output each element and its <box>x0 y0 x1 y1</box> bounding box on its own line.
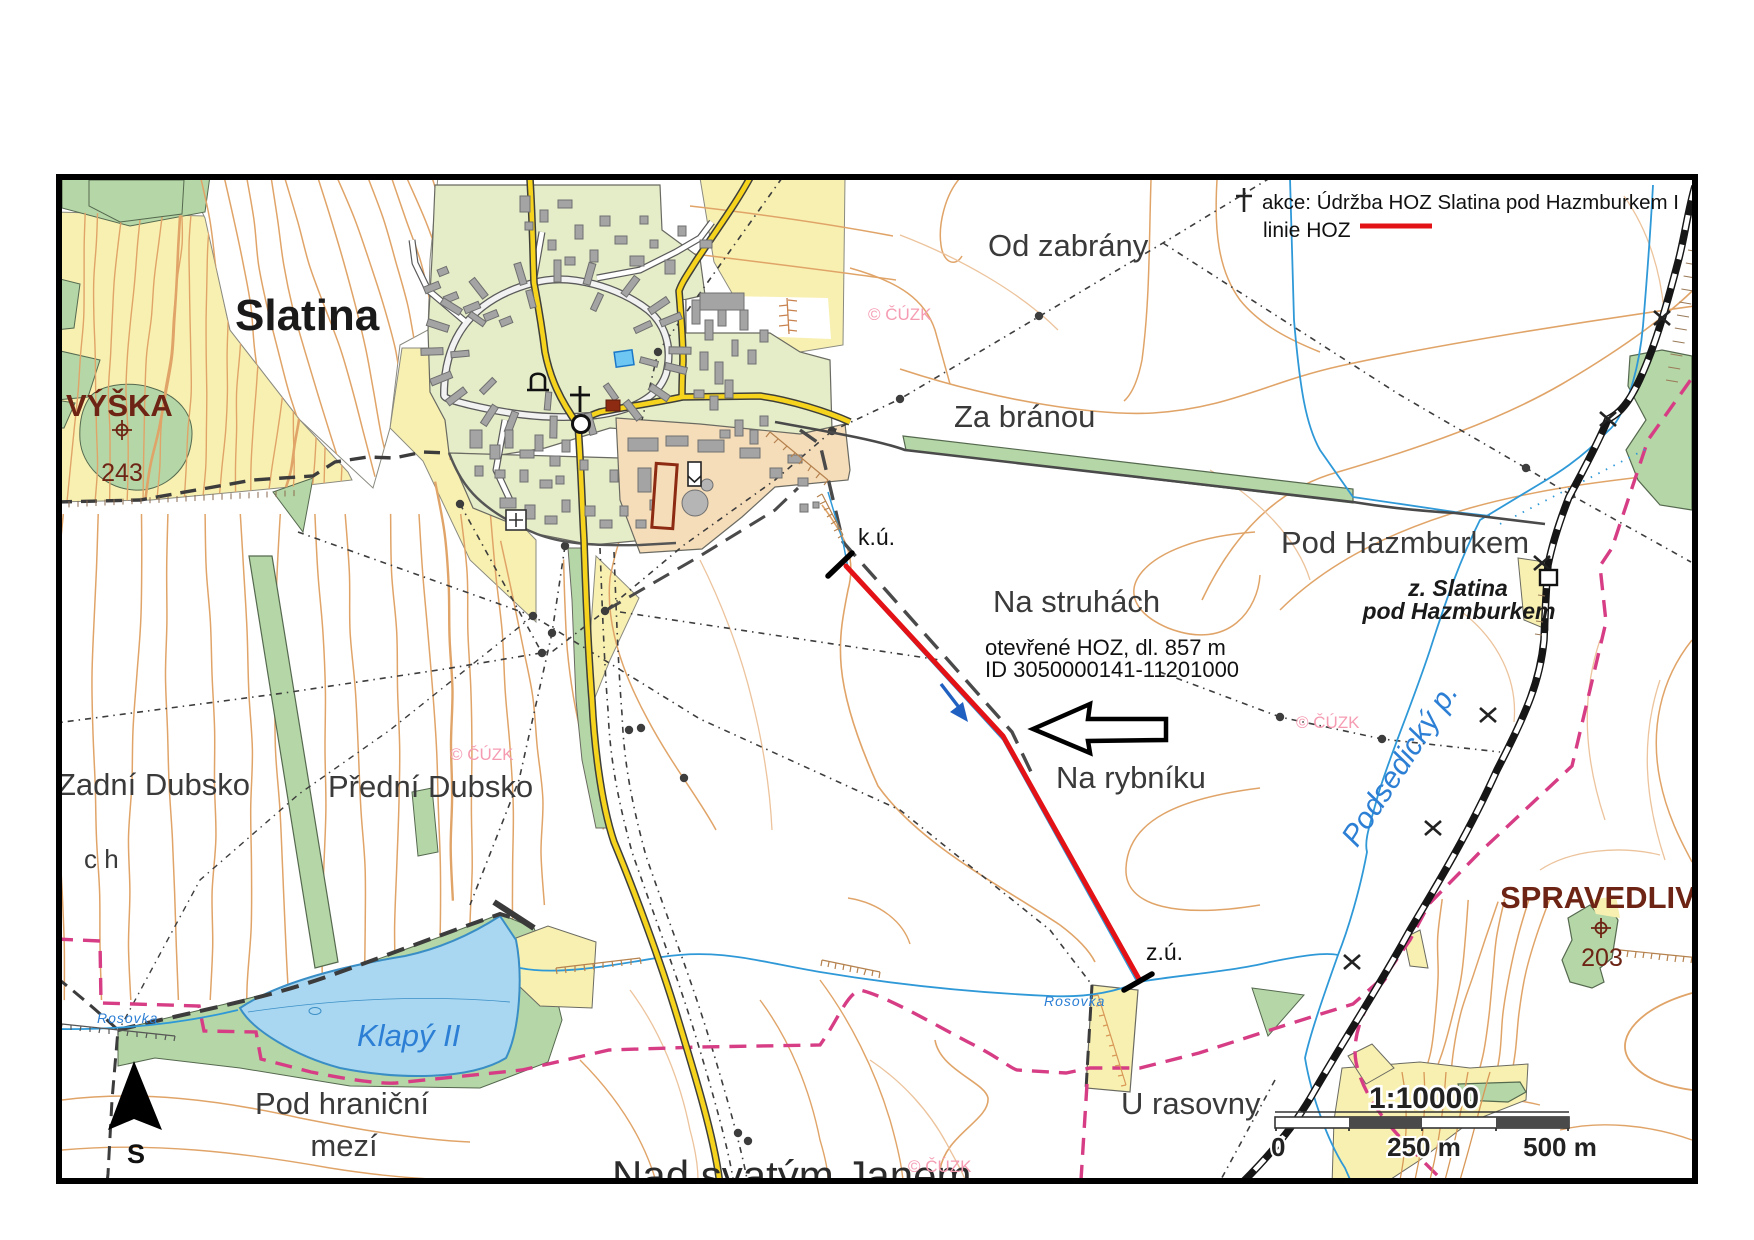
svg-text:c h: c h <box>84 844 119 874</box>
svg-text:S: S <box>127 1139 145 1169</box>
svg-text:linie HOZ: linie HOZ <box>1263 219 1351 242</box>
svg-text:akce: Údržba HOZ Slatina pod H: akce: Údržba HOZ Slatina pod Hazmburkem … <box>1262 191 1679 214</box>
svg-text:243: 243 <box>101 459 143 487</box>
svg-text:Pod hraniční: Pod hraniční <box>255 1086 429 1121</box>
svg-text:© ČÚZK: © ČÚZK <box>868 305 932 324</box>
svg-text:z.ú.: z.ú. <box>1146 939 1183 965</box>
svg-text:VÝŠKA: VÝŠKA <box>66 387 173 423</box>
svg-text:Od zabrány: Od zabrány <box>988 228 1149 263</box>
svg-text:1:10000: 1:10000 <box>1369 1082 1479 1115</box>
svg-text:Klapý II: Klapý II <box>357 1018 461 1053</box>
svg-text:Pod Hazmburkem: Pod Hazmburkem <box>1281 525 1529 560</box>
svg-text:203: 203 <box>1581 944 1623 972</box>
svg-text:mezí: mezí <box>310 1128 378 1163</box>
svg-text:k.ú.: k.ú. <box>858 524 895 550</box>
svg-text:Na struhách: Na struhách <box>993 584 1160 619</box>
svg-text:© ČÚZK: © ČÚZK <box>1296 713 1360 732</box>
svg-text:© ČÚZK: © ČÚZK <box>908 1157 972 1176</box>
svg-text:SPRAVEDLIVÝ: SPRAVEDLIVÝ <box>1500 880 1717 915</box>
svg-text:pod Hazmburkem: pod Hazmburkem <box>1362 598 1556 624</box>
svg-text:250 m: 250 m <box>1387 1132 1461 1162</box>
svg-text:500 m: 500 m <box>1523 1132 1597 1162</box>
svg-text:Na rybníku: Na rybníku <box>1056 760 1206 795</box>
svg-text:U rasovny: U rasovny <box>1121 1086 1261 1121</box>
svg-text:Za bránou: Za bránou <box>954 399 1095 434</box>
svg-text:Přední Dubsko: Přední Dubsko <box>328 769 533 804</box>
svg-text:Rosovka: Rosovka <box>97 1010 158 1026</box>
svg-text:Rosovka: Rosovka <box>1044 993 1105 1009</box>
svg-text:0: 0 <box>1271 1132 1285 1162</box>
svg-text:ID 3050000141-11201000: ID 3050000141-11201000 <box>985 657 1239 682</box>
svg-text:Zadní Dubsko: Zadní Dubsko <box>57 767 250 802</box>
svg-text:© ČÚZK: © ČÚZK <box>450 745 514 764</box>
svg-text:Slatina: Slatina <box>235 291 380 340</box>
